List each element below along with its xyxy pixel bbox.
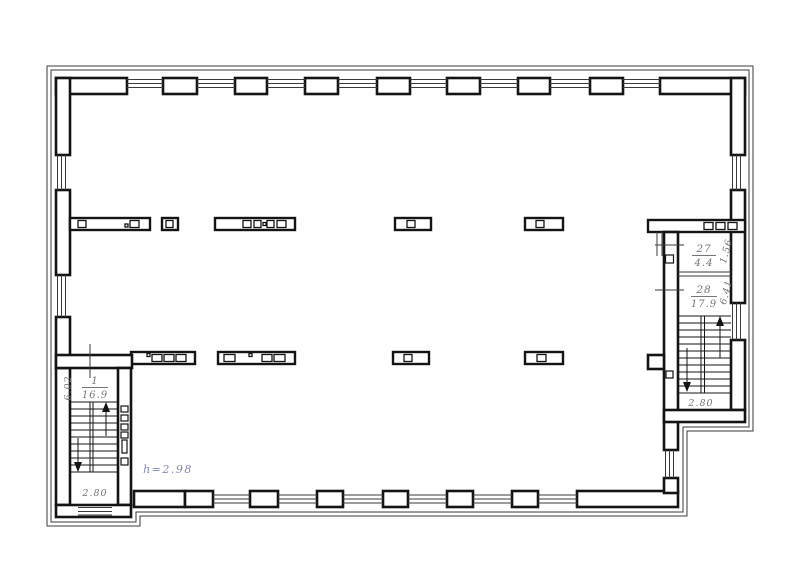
floor-plan-drawing: 1 16.9 6.02 2.80 27 4.4 1.56 28 17.9 6.4… xyxy=(0,0,800,587)
room-area-label: 4.4 xyxy=(694,258,714,269)
stairs-down-arrow-icon xyxy=(683,348,691,392)
window xyxy=(197,80,235,88)
window xyxy=(58,155,66,190)
column-marker xyxy=(666,371,673,378)
room-number-label: 28 xyxy=(695,284,711,296)
window xyxy=(343,495,383,503)
corridor-wall-lines xyxy=(657,232,662,256)
room-partition-line xyxy=(678,272,731,276)
window xyxy=(550,80,590,88)
dimension-label: 6.02 xyxy=(63,375,74,400)
window xyxy=(480,80,518,88)
stairs-right xyxy=(678,316,731,393)
window xyxy=(338,80,377,88)
partition-row-2 xyxy=(131,352,563,364)
window xyxy=(733,155,741,190)
stairwell-left-top-wall xyxy=(56,355,132,368)
floor-plan-page: 1 16.9 6.02 2.80 27 4.4 1.56 28 17.9 6.4… xyxy=(0,0,800,587)
window xyxy=(213,495,250,503)
window xyxy=(278,495,317,503)
window xyxy=(127,80,163,88)
left-exterior-wall xyxy=(56,78,70,505)
room-area-label: 17.9 xyxy=(691,299,717,310)
window xyxy=(666,450,674,478)
window xyxy=(408,495,447,503)
column-marker xyxy=(666,255,674,263)
window xyxy=(623,80,660,88)
window xyxy=(733,303,741,340)
window xyxy=(473,495,512,503)
stair-stringer xyxy=(701,316,705,393)
ceiling-height-note: h=2.98 xyxy=(143,463,193,476)
window xyxy=(538,495,577,503)
window xyxy=(267,80,305,88)
room-area-label: 16.9 xyxy=(82,390,108,401)
dimension-label: 2.80 xyxy=(687,398,713,409)
room-number-label: 27 xyxy=(695,243,711,255)
row2-column-markers xyxy=(147,354,546,362)
stairs-down-arrow-icon xyxy=(74,438,82,472)
top-exterior-wall xyxy=(56,78,745,94)
dimension-label: 2.80 xyxy=(81,488,107,499)
stairs-left xyxy=(70,402,118,472)
outer-boundary-lines xyxy=(47,66,753,526)
wall-stub xyxy=(648,355,664,369)
window xyxy=(410,80,447,88)
room-number-label: 1 xyxy=(91,375,99,387)
window xyxy=(58,275,66,317)
notch-wall xyxy=(664,417,678,493)
stairs-up-arrow-icon xyxy=(102,402,110,436)
stairwell-right-bottom-wall xyxy=(664,410,745,422)
